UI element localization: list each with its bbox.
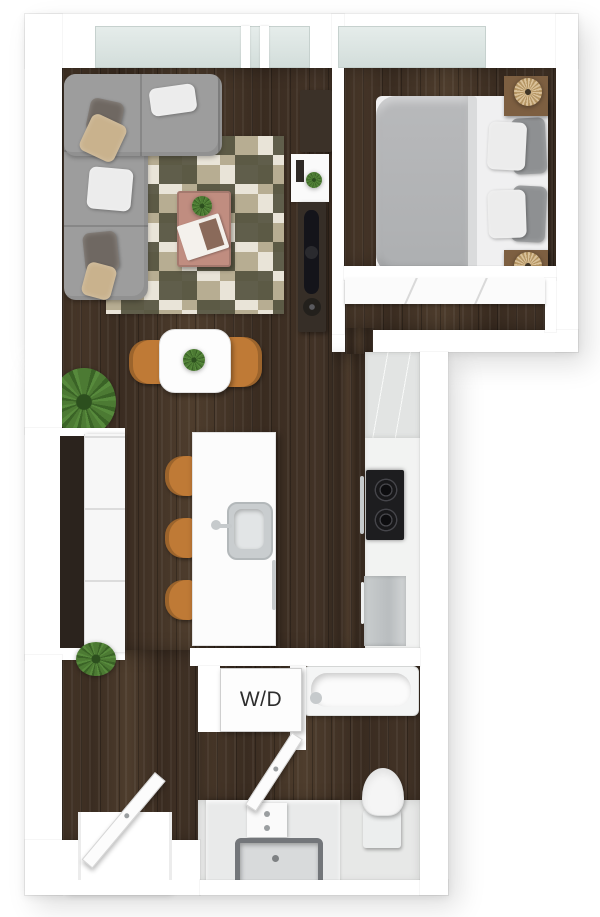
- closet-door-seam-1: [402, 278, 419, 304]
- wall-closet-bottom: [373, 330, 578, 352]
- wall-left-upper: [25, 14, 62, 434]
- vanity-faucet-dot-2: [264, 825, 270, 831]
- shelf-plant: [306, 172, 322, 188]
- tv-stand: [305, 246, 318, 259]
- refrigerator: [364, 576, 406, 646]
- living-window-mullion-2: [260, 26, 269, 68]
- wardrobe-niche-gap: [60, 436, 84, 648]
- entry-door-handle: [123, 812, 130, 819]
- living-window: [95, 26, 310, 68]
- bed-duvet: [376, 96, 477, 274]
- upper-cabinets: [365, 352, 420, 438]
- speaker: [303, 298, 321, 316]
- bed-pillow-white-1: [487, 121, 527, 171]
- wall-bath-top: [190, 648, 420, 666]
- dining-table-plant: [183, 349, 205, 371]
- coffee-table-plant: [192, 196, 212, 216]
- living-window-mullion-1: [241, 26, 250, 68]
- sofa-pillow-white-2: [86, 166, 133, 212]
- floor-plant-small: [76, 642, 116, 676]
- burner-2: [374, 508, 398, 532]
- bar-stool-3: [165, 580, 195, 620]
- bedroom-window: [338, 26, 486, 68]
- lamp-top: [514, 78, 542, 106]
- bathroom-door-handle: [272, 766, 279, 773]
- bar-stool-1: [165, 456, 195, 496]
- island-faucet-base: [211, 520, 221, 530]
- refrigerator-handle: [361, 582, 364, 624]
- vanity-faucet-dot-1: [264, 811, 270, 817]
- washer-dryer-unit: W/D: [220, 668, 302, 732]
- media-cabinet-upper: [300, 90, 332, 152]
- bathtub-basin: [311, 673, 411, 707]
- wall-right-lower: [420, 352, 448, 895]
- floor-plan: W/D: [0, 0, 600, 917]
- oven-handle: [360, 476, 364, 534]
- bathtub-faucet: [310, 692, 322, 704]
- magazine-photo: [199, 218, 225, 250]
- wardrobe-doors: [84, 434, 125, 652]
- burner-1: [374, 478, 398, 502]
- washer-dryer-label: W/D: [240, 688, 282, 712]
- shelf-books: [296, 160, 304, 182]
- closet-entry-gap-floor: [345, 328, 375, 354]
- closet-sliding-doors: [345, 278, 545, 304]
- bed-pillow-white-2: [487, 189, 527, 238]
- closet-door-seam-2: [472, 278, 489, 304]
- sink-drain: [272, 855, 279, 862]
- wall-closet-right-end: [545, 278, 556, 332]
- wall-right-upper: [556, 14, 578, 352]
- wall-wd-left-stub: [198, 666, 220, 732]
- wall-bottom-bath: [200, 880, 448, 895]
- bar-stool-2: [165, 518, 195, 558]
- island-sink-basin: [234, 509, 264, 549]
- dishwasher-handle: [272, 560, 276, 610]
